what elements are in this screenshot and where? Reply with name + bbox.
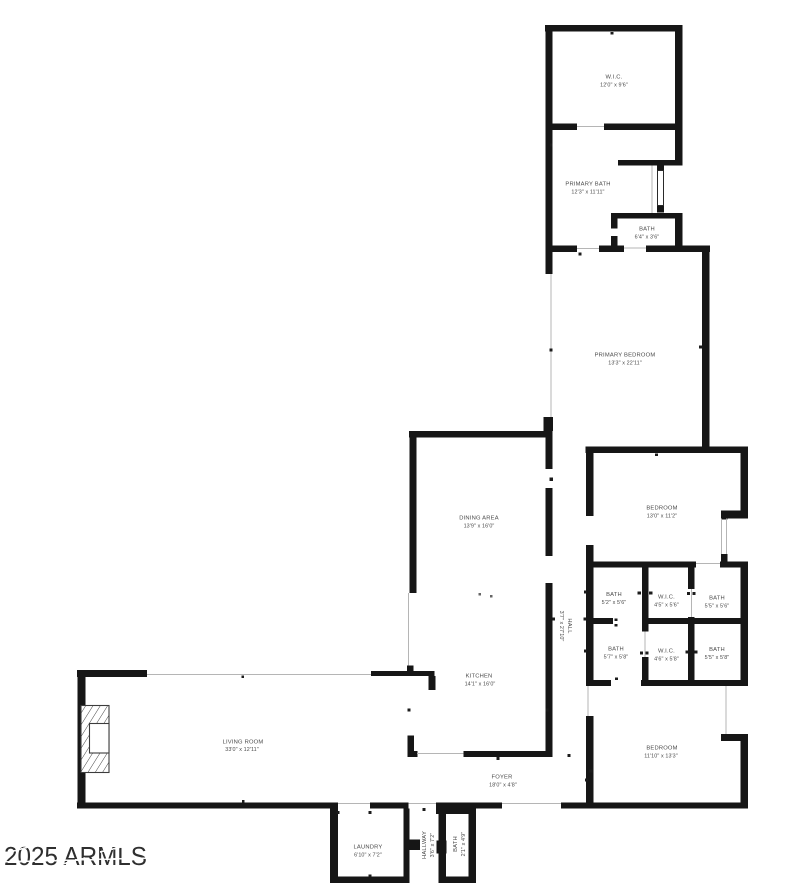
svg-text:11'10" x 13'3": 11'10" x 13'3" [644,754,678,760]
svg-text:4'5" x 5'6": 4'5" x 5'6" [654,603,679,609]
svg-text:12'3" x 11'11": 12'3" x 11'11" [571,190,604,196]
svg-text:2'1" x 4'9": 2'1" x 4'9" [461,832,467,857]
svg-text:5'2" x 5'6": 5'2" x 5'6" [602,600,627,606]
svg-text:13'0" x 11'2": 13'0" x 11'2" [647,514,677,520]
svg-text:PRIMARY BEDROOM: PRIMARY BEDROOM [595,353,656,359]
svg-text:12'0" x 9'6": 12'0" x 9'6" [600,83,628,89]
svg-text:BATH: BATH [639,227,655,233]
svg-text:13'9" x 16'0": 13'9" x 16'0" [464,524,495,530]
svg-text:BATH: BATH [608,647,624,653]
svg-text:13'3" x 22'11": 13'3" x 22'11" [608,361,642,367]
svg-text:LIVING ROOM: LIVING ROOM [223,740,264,746]
svg-text:KITCHEN: KITCHEN [466,674,493,680]
svg-text:33'0" x 12'11": 33'0" x 12'11" [225,747,259,753]
svg-text:6'4" x 3'6": 6'4" x 3'6" [635,235,660,241]
svg-text:3'6" x 7'2": 3'6" x 7'2" [430,833,436,858]
svg-text:18'0" x 4'8": 18'0" x 4'8" [489,783,517,789]
svg-text:BEDROOM: BEDROOM [646,746,677,752]
svg-text:14'1" x 16'0": 14'1" x 16'0" [465,682,496,688]
svg-text:BATH: BATH [606,592,622,598]
svg-text:BATH: BATH [709,647,725,653]
svg-text:BEDROOM: BEDROOM [646,506,677,512]
svg-text:DINING AREA: DINING AREA [459,516,499,522]
svg-text:BATH: BATH [709,596,725,602]
svg-text:HALL: HALL [566,618,572,634]
svg-text:FOYER: FOYER [492,775,513,781]
svg-text:W.I.C.: W.I.C. [658,649,675,655]
svg-text:PRIMARY BATH: PRIMARY BATH [565,182,610,188]
svg-text:W.I.C.: W.I.C. [658,595,675,601]
svg-text:5'7" x 5'8": 5'7" x 5'8" [604,655,629,661]
svg-text:5'5" x 5'6": 5'5" x 5'6" [705,604,730,610]
svg-text:5'5" x 5'8": 5'5" x 5'8" [705,655,730,661]
svg-text:BATH: BATH [453,836,459,852]
svg-text:3'7" x 27'10": 3'7" x 27'10" [558,611,564,642]
svg-text:4'6" x 5'8": 4'6" x 5'8" [654,657,679,663]
svg-text:W.I.C.: W.I.C. [606,75,623,81]
svg-text:HALLWAY: HALLWAY [422,831,428,859]
svg-text:6'10" x 7'2": 6'10" x 7'2" [354,853,382,859]
svg-text:LAUNDRY: LAUNDRY [354,845,383,851]
